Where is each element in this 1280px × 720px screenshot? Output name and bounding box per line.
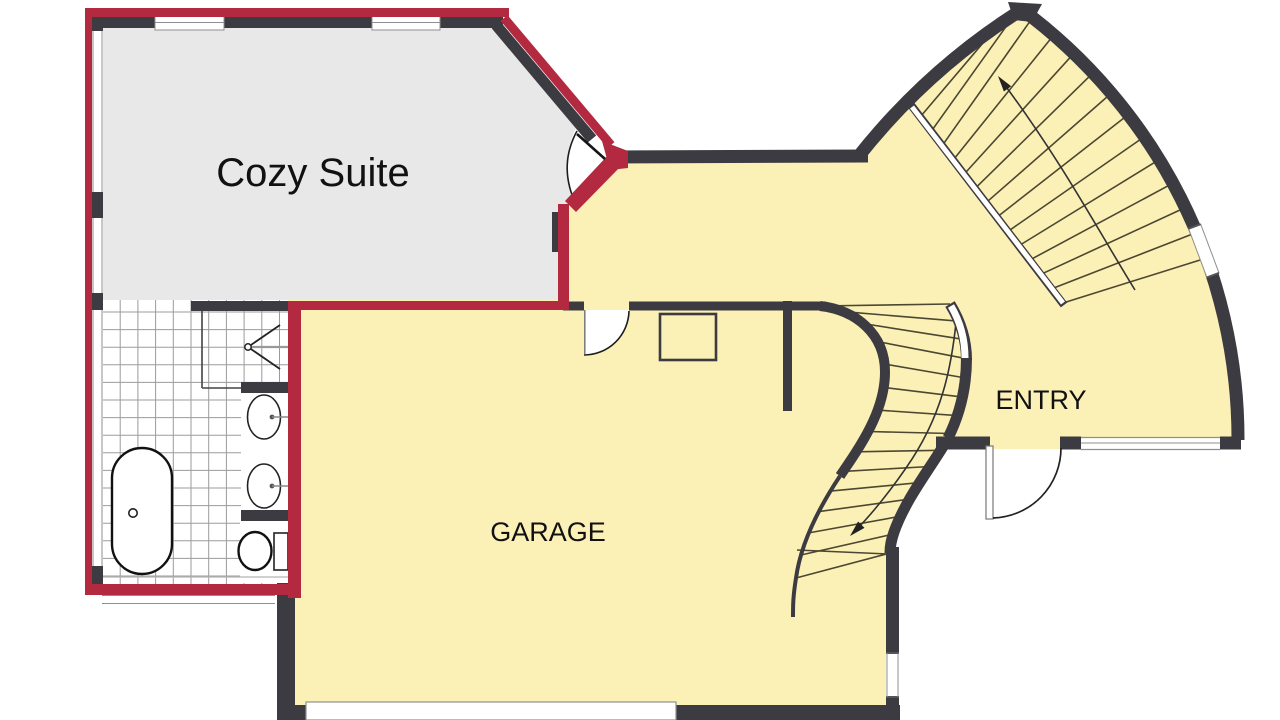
svg-text:ENTRY: ENTRY: [995, 385, 1086, 415]
svg-text:Cozy Suite: Cozy Suite: [216, 151, 409, 195]
svg-text:GARAGE: GARAGE: [490, 517, 606, 547]
